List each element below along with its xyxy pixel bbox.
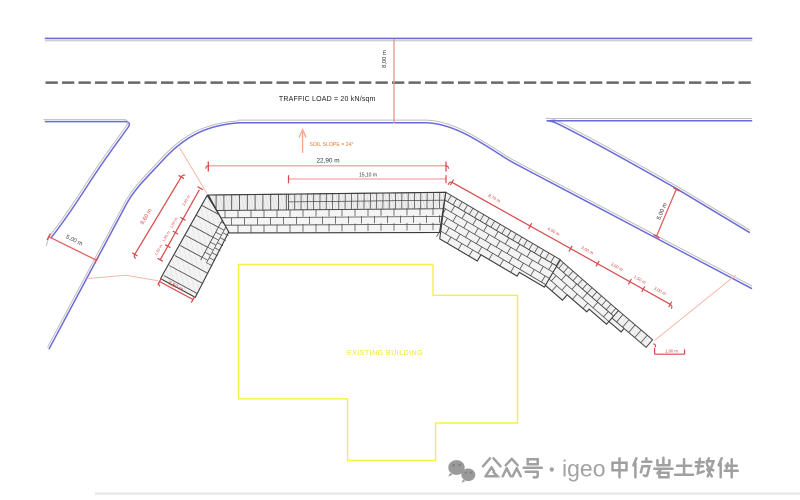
- svg-text:1,00 m: 1,00 m: [665, 348, 678, 353]
- svg-text:SOIL SLOPE = 24°: SOIL SLOPE = 24°: [309, 142, 353, 148]
- svg-text:EXISTING BUILDING: EXISTING BUILDING: [347, 350, 423, 357]
- svg-text:TRAFFIC LOAD = 20 kN/sqm: TRAFFIC LOAD = 20 kN/sqm: [279, 96, 376, 103]
- svg-text:15,10 m: 15,10 m: [359, 172, 377, 178]
- svg-text:22,90 m: 22,90 m: [316, 158, 339, 165]
- svg-text:igeo: igeo: [562, 456, 605, 482]
- svg-text:8,00 m: 8,00 m: [382, 50, 388, 68]
